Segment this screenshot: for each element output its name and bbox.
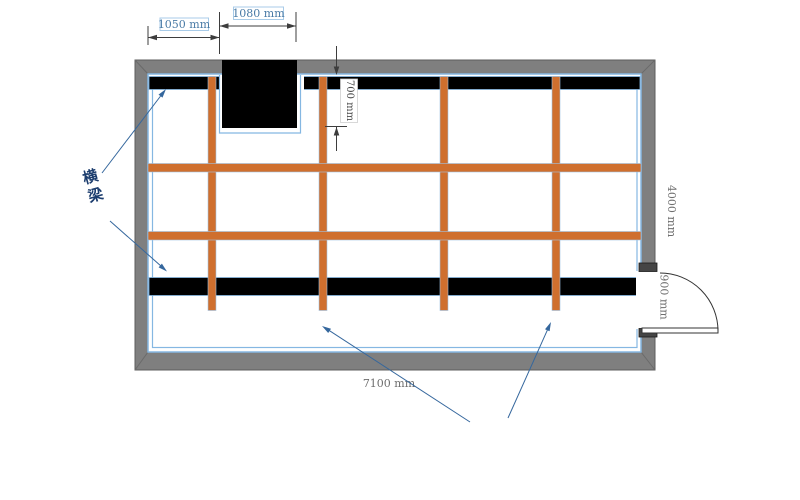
dim-4000-label: 4000 mm [665, 185, 678, 238]
dim-1080-arrow-left [220, 23, 229, 28]
dim-1050-arrow-left [148, 35, 157, 40]
steel-bar-horizontal-1 [148, 164, 641, 173]
dim-1050-arrow-right [211, 35, 220, 40]
door-jamb-top [639, 263, 657, 272]
door-opening [636, 271, 656, 329]
door-leaf [642, 328, 718, 333]
floor-plan-drawing: 1050 mm 1080 mm 700 mm 4000 mm 900 mm 71… [0, 0, 800, 500]
steel-bar-horizontal-2 [148, 232, 641, 241]
dim-1080-label: 1080 mm [232, 7, 285, 20]
floor-plan-canvas: 1050 mm 1080 mm 700 mm 4000 mm 900 mm 71… [0, 0, 800, 500]
dim-900-label: 900 mm [658, 274, 671, 320]
bottom-crossbeam [149, 278, 640, 296]
steel-bar-vertical-4 [552, 77, 560, 311]
dim-700-label: 700 mm [344, 80, 355, 122]
dim-7100-label: 7100 mm [363, 377, 416, 390]
steel-bar-vertical-3 [440, 77, 448, 311]
dim-1050-label: 1050 mm [158, 18, 211, 31]
steel-bar-vertical-2 [319, 77, 327, 311]
dim-1080-arrow-right [287, 23, 296, 28]
steel-bar-vertical-1 [208, 77, 216, 311]
wall-opening-block [222, 60, 297, 128]
